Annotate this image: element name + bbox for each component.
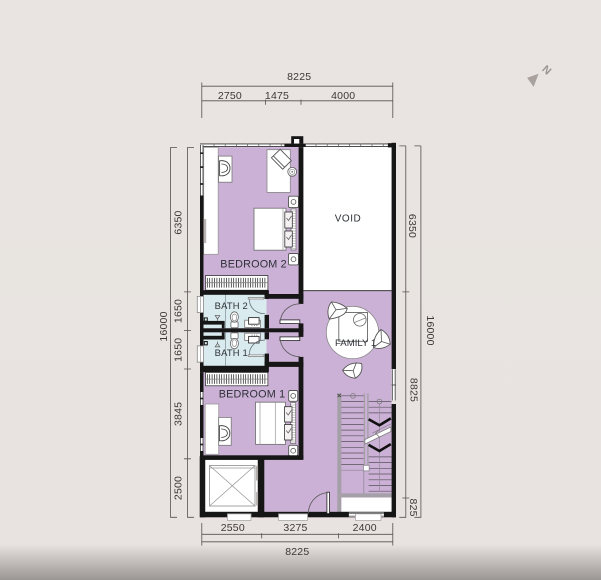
svg-text:3275: 3275 bbox=[283, 522, 307, 534]
svg-text:FAMILY 1: FAMILY 1 bbox=[335, 338, 376, 349]
svg-text:2500: 2500 bbox=[173, 476, 185, 500]
svg-text:1650: 1650 bbox=[173, 338, 185, 362]
svg-text:16000: 16000 bbox=[424, 315, 436, 345]
svg-text:8225: 8225 bbox=[285, 546, 309, 558]
svg-text:16000: 16000 bbox=[158, 311, 170, 341]
svg-text:3845: 3845 bbox=[173, 402, 185, 426]
svg-text:BATH 1: BATH 1 bbox=[215, 347, 248, 358]
svg-text:BEDROOM 2: BEDROOM 2 bbox=[220, 258, 287, 270]
svg-text:2750: 2750 bbox=[218, 90, 242, 102]
svg-text:VOID: VOID bbox=[335, 214, 361, 225]
svg-text:8825: 8825 bbox=[407, 378, 419, 402]
svg-text:BEDROOM 1: BEDROOM 1 bbox=[219, 388, 286, 400]
svg-text:1475: 1475 bbox=[265, 90, 289, 102]
svg-text:825: 825 bbox=[407, 499, 419, 517]
svg-text:2400: 2400 bbox=[353, 522, 377, 534]
svg-text:2550: 2550 bbox=[221, 522, 245, 534]
svg-text:1650: 1650 bbox=[173, 299, 185, 323]
svg-text:4000: 4000 bbox=[331, 90, 355, 102]
svg-text:6350: 6350 bbox=[173, 210, 185, 234]
svg-text:BATH 2: BATH 2 bbox=[215, 300, 248, 311]
svg-text:6350: 6350 bbox=[406, 214, 418, 238]
svg-text:8225: 8225 bbox=[287, 71, 311, 83]
